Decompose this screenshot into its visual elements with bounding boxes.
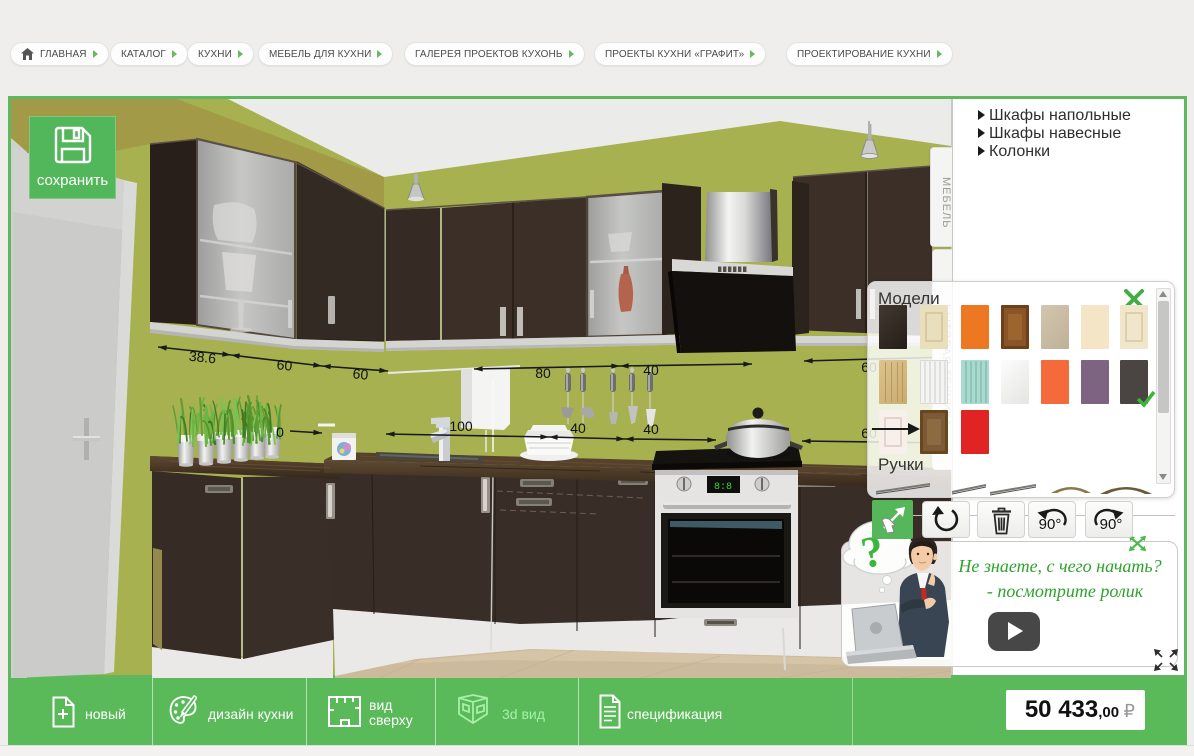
svg-text:0: 0 [276,424,284,440]
svg-text:40: 40 [643,362,659,378]
svg-text:90°: 90° [1039,516,1062,533]
svg-text:38.6: 38.6 [188,348,217,367]
svg-text:8:8: 8:8 [714,482,732,493]
svg-text:60: 60 [352,365,369,383]
svg-text:40: 40 [643,421,659,437]
svg-text:90°: 90° [1100,516,1123,533]
svg-text:40: 40 [570,420,586,436]
svg-text:100: 100 [449,418,473,434]
svg-text:60: 60 [276,356,293,374]
svg-text:80: 80 [535,365,551,381]
